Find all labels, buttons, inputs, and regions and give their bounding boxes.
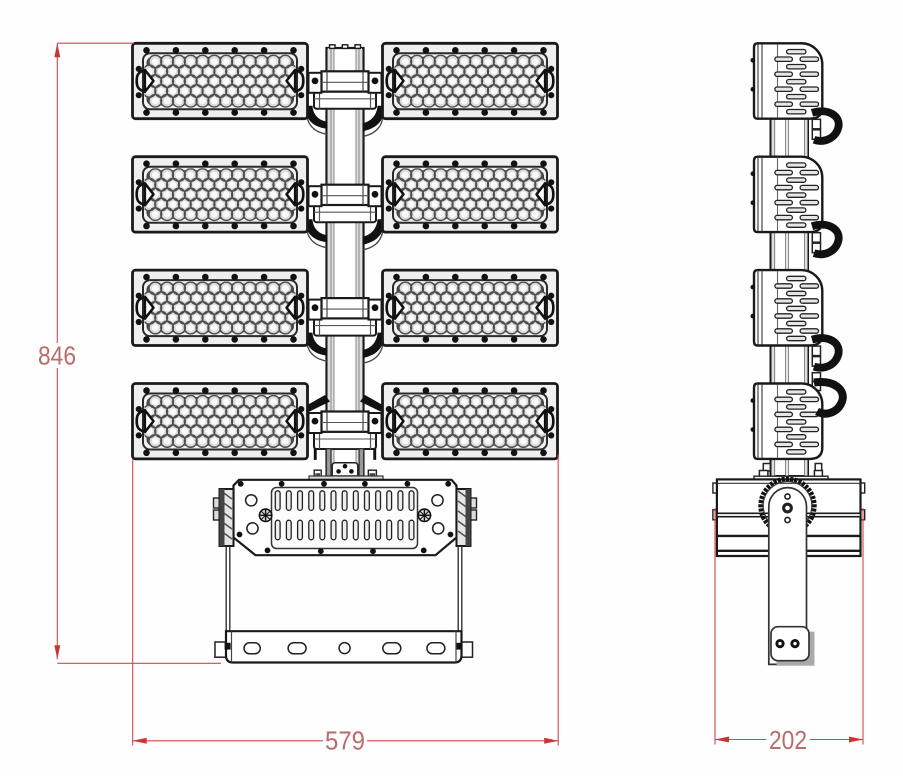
svg-text:202: 202 bbox=[769, 725, 807, 755]
svg-text:579: 579 bbox=[325, 726, 365, 756]
svg-text:846: 846 bbox=[38, 341, 76, 371]
